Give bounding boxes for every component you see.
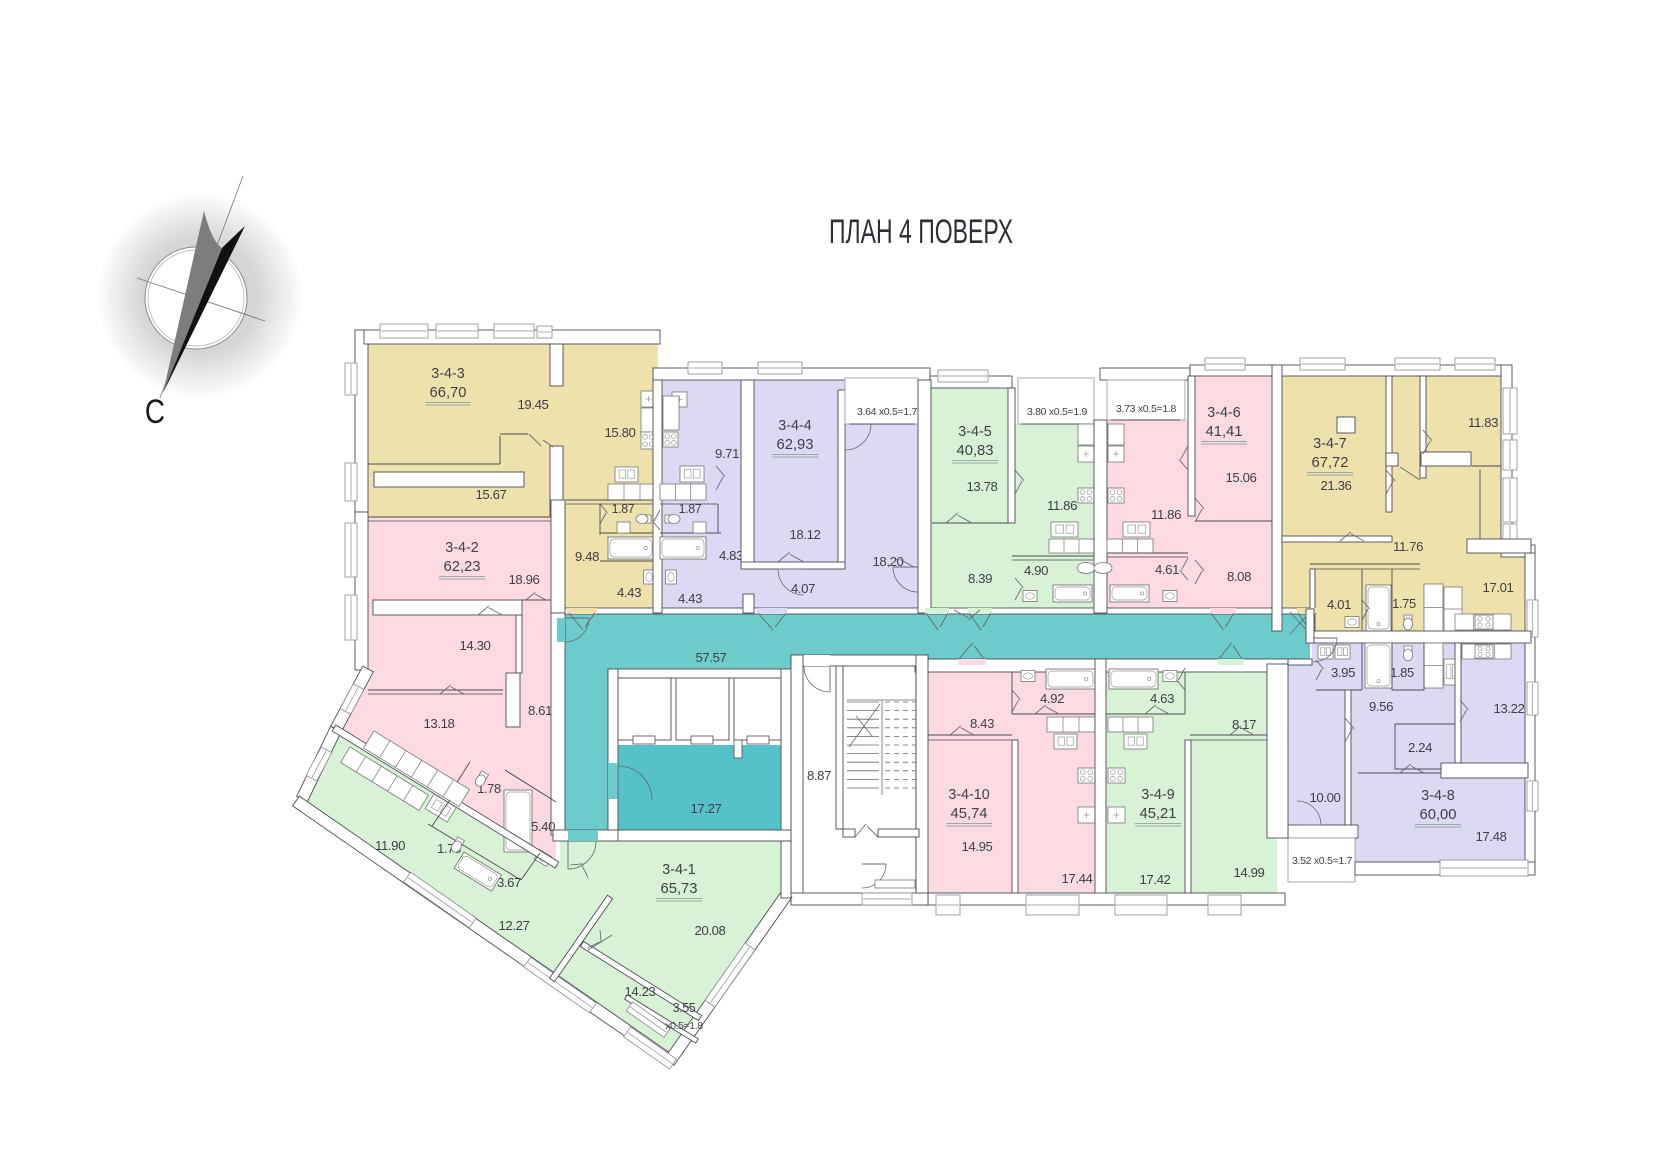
svg-text:3-4-6: 3-4-6	[1207, 405, 1240, 421]
svg-text:2.24: 2.24	[1408, 740, 1432, 755]
svg-text:8.61: 8.61	[528, 703, 552, 718]
svg-text:8.08: 8.08	[1227, 569, 1251, 584]
svg-text:8.39: 8.39	[968, 571, 992, 586]
svg-text:62,93: 62,93	[776, 437, 813, 453]
svg-text:9.56: 9.56	[1369, 699, 1393, 714]
svg-text:3.95: 3.95	[1331, 665, 1355, 680]
svg-text:11.86: 11.86	[1047, 498, 1077, 513]
svg-text:1.75: 1.75	[1392, 596, 1416, 611]
svg-text:62,23: 62,23	[443, 559, 480, 575]
svg-text:3.64 x0.5=1.7: 3.64 x0.5=1.7	[857, 406, 917, 418]
svg-text:4.01: 4.01	[1327, 597, 1351, 612]
svg-text:9.71: 9.71	[715, 446, 739, 461]
svg-text:11.90: 11.90	[375, 838, 405, 853]
svg-text:3.73 x0.5=1.8: 3.73 x0.5=1.8	[1116, 403, 1176, 415]
svg-text:15.67: 15.67	[475, 487, 506, 502]
svg-text:3-4-1: 3-4-1	[662, 862, 695, 878]
svg-text:57.57: 57.57	[695, 650, 726, 665]
svg-text:1.87: 1.87	[679, 502, 702, 516]
svg-text:11.83: 11.83	[1468, 415, 1498, 430]
svg-text:18.12: 18.12	[789, 527, 820, 542]
svg-text:17.42: 17.42	[1139, 872, 1170, 887]
svg-text:17.44: 17.44	[1061, 871, 1092, 886]
svg-text:13.78: 13.78	[966, 479, 997, 494]
svg-text:65,73: 65,73	[660, 881, 697, 897]
svg-text:13.18: 13.18	[423, 716, 454, 731]
svg-text:3-4-9: 3-4-9	[1141, 787, 1174, 803]
svg-text:4.63: 4.63	[1150, 691, 1174, 706]
svg-text:4.43: 4.43	[678, 591, 702, 606]
svg-text:9.48: 9.48	[575, 549, 599, 564]
svg-text:14.99: 14.99	[1233, 865, 1264, 880]
svg-text:66,70: 66,70	[429, 385, 466, 401]
svg-text:10.00: 10.00	[1309, 790, 1340, 805]
svg-text:1.87: 1.87	[612, 502, 635, 516]
svg-text:21.36: 21.36	[1320, 478, 1351, 493]
svg-text:3.80 x0.5=1.9: 3.80 x0.5=1.9	[1027, 406, 1087, 418]
svg-text:4.61: 4.61	[1155, 562, 1179, 577]
svg-text:17.48: 17.48	[1475, 829, 1506, 844]
svg-text:17.27: 17.27	[690, 801, 721, 816]
svg-text:3-4-4: 3-4-4	[778, 418, 811, 434]
svg-text:3-4-5: 3-4-5	[958, 424, 991, 440]
svg-text:4.83: 4.83	[719, 548, 743, 563]
svg-text:8.87: 8.87	[807, 768, 831, 783]
svg-text:С: С	[145, 392, 165, 430]
svg-text:67,72: 67,72	[1311, 455, 1348, 471]
svg-text:3-4-7: 3-4-7	[1313, 436, 1346, 452]
svg-text:15.80: 15.80	[604, 425, 635, 440]
svg-text:12.27: 12.27	[498, 918, 529, 933]
svg-text:15.06: 15.06	[1225, 470, 1256, 485]
svg-text:3-4-10: 3-4-10	[948, 787, 989, 803]
svg-text:8.43: 8.43	[970, 716, 994, 731]
svg-text:45,74: 45,74	[950, 806, 987, 822]
svg-text:1.85: 1.85	[1390, 665, 1414, 680]
svg-text:11.76: 11.76	[1393, 539, 1423, 554]
svg-text:60,00: 60,00	[1419, 807, 1456, 823]
svg-text:14.30: 14.30	[459, 638, 490, 653]
svg-text:4.43: 4.43	[617, 585, 641, 600]
svg-text:3.55: 3.55	[673, 1001, 696, 1015]
svg-text:13.22: 13.22	[1493, 701, 1524, 716]
svg-text:17.01: 17.01	[1482, 580, 1513, 595]
svg-text:3-4-3: 3-4-3	[431, 366, 464, 382]
svg-text:5.40: 5.40	[531, 819, 555, 834]
svg-text:11.86: 11.86	[1151, 507, 1181, 522]
svg-text:20.08: 20.08	[694, 923, 725, 938]
svg-text:45,21: 45,21	[1139, 806, 1176, 822]
svg-text:19.45: 19.45	[517, 397, 548, 412]
svg-text:14.95: 14.95	[961, 839, 992, 854]
svg-text:41,41: 41,41	[1205, 424, 1242, 440]
svg-text:3.52 x0.5=1.7: 3.52 x0.5=1.7	[1292, 855, 1352, 867]
svg-text:4.90: 4.90	[1024, 563, 1048, 578]
svg-text:4.07: 4.07	[791, 581, 815, 596]
svg-text:3-4-2: 3-4-2	[445, 540, 478, 556]
svg-text:40,83: 40,83	[956, 443, 993, 459]
svg-text:3-4-8: 3-4-8	[1421, 788, 1454, 804]
svg-text:x0.5=1.8: x0.5=1.8	[665, 1020, 703, 1032]
svg-text:18.96: 18.96	[508, 572, 539, 587]
svg-text:4.92: 4.92	[1040, 691, 1064, 706]
svg-text:ПЛАН 4 ПОВЕРХ: ПЛАН 4 ПОВЕРХ	[829, 213, 1013, 251]
